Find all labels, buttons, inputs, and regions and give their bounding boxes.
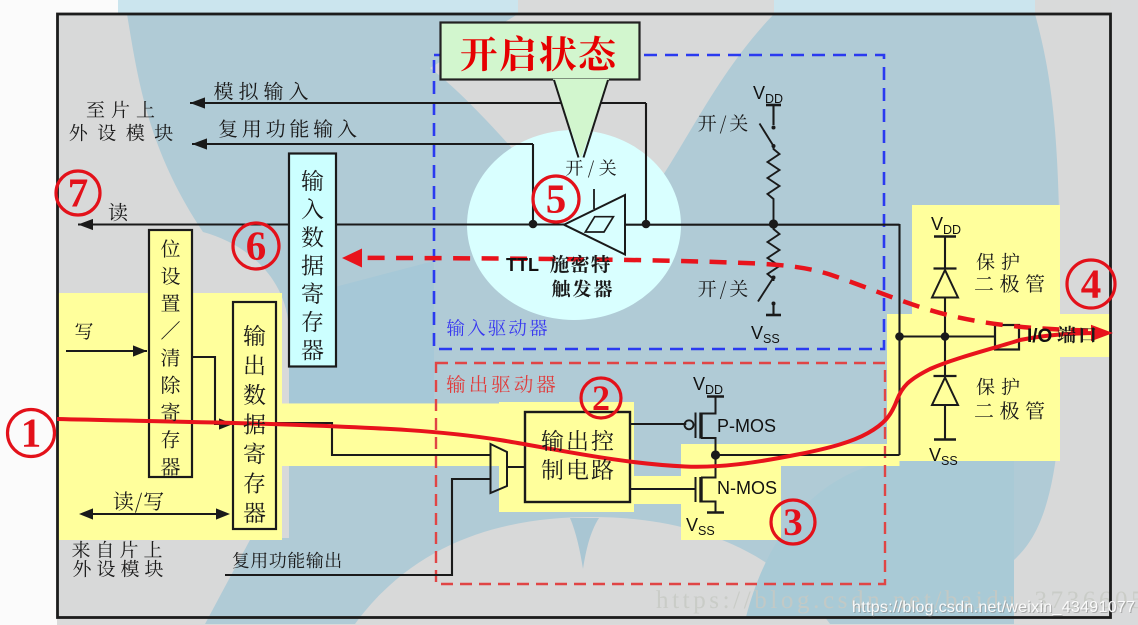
svg-text:3: 3 xyxy=(783,501,803,544)
svg-text:V: V xyxy=(686,515,698,535)
svg-text:6: 6 xyxy=(246,223,267,269)
svg-text:5: 5 xyxy=(546,176,567,222)
svg-text:DD: DD xyxy=(943,223,961,237)
svg-text:SS: SS xyxy=(763,332,780,346)
svg-text:V: V xyxy=(751,323,763,343)
svg-text:DD: DD xyxy=(765,92,783,106)
svg-text:TTL: TTL xyxy=(506,255,539,275)
svg-text:DD: DD xyxy=(705,383,723,397)
svg-text:I/O: I/O xyxy=(1027,326,1052,347)
svg-text:V: V xyxy=(753,83,765,103)
svg-text:N-MOS: N-MOS xyxy=(717,478,777,498)
svg-text:P-MOS: P-MOS xyxy=(717,416,776,436)
svg-text:SS: SS xyxy=(941,454,958,468)
svg-text:SS: SS xyxy=(698,524,715,538)
svg-text:7: 7 xyxy=(68,170,89,216)
svg-text:4: 4 xyxy=(1081,261,1102,307)
svg-text:V: V xyxy=(931,214,943,234)
svg-text:https://blog.csdn.net/weixin_4: https://blog.csdn.net/weixin_43491077 xyxy=(852,599,1135,616)
svg-text:1: 1 xyxy=(21,410,42,456)
svg-text:V: V xyxy=(929,445,941,465)
svg-text:2: 2 xyxy=(592,378,610,418)
svg-text:V: V xyxy=(693,374,705,394)
